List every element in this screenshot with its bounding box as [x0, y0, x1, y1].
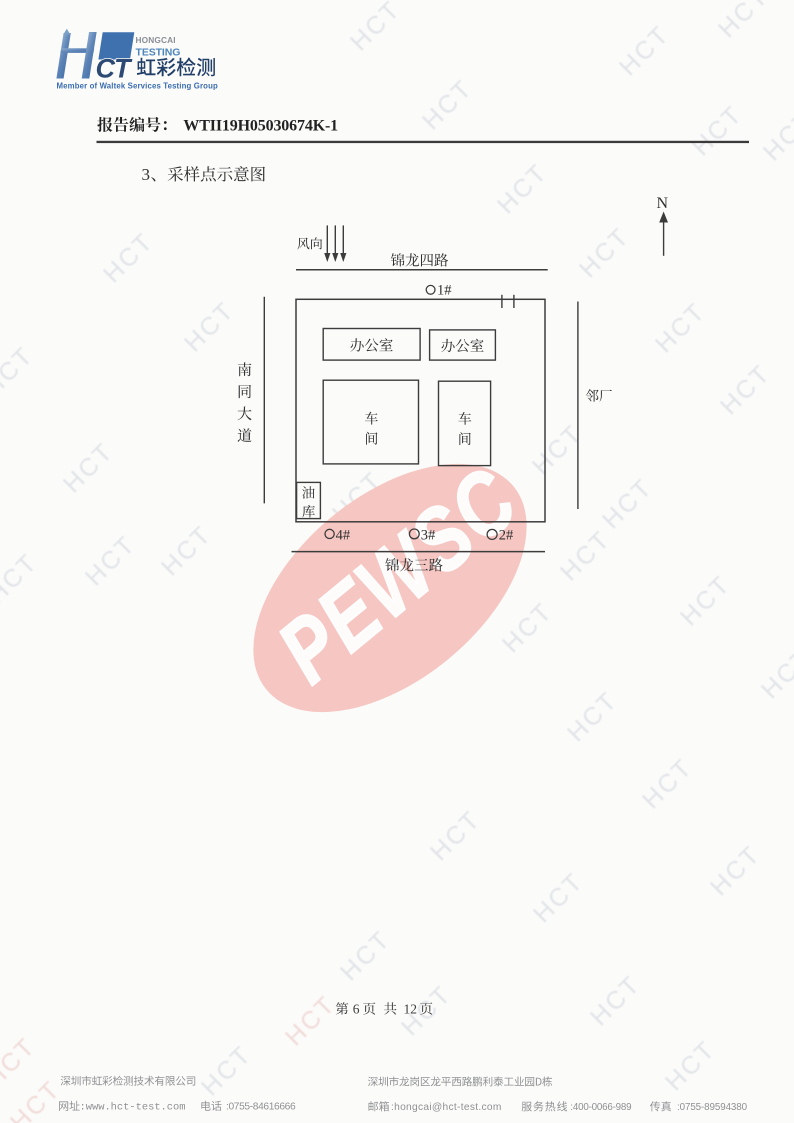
svg-text::400-0066-989: :400-0066-989 — [570, 1102, 631, 1113]
svg-text:HONGCAI: HONGCAI — [136, 35, 176, 45]
svg-text:2#: 2# — [499, 528, 514, 544]
svg-text:3: 3 — [142, 165, 151, 184]
svg-text:12: 12 — [404, 1002, 418, 1017]
svg-text::0755-89594380: :0755-89594380 — [677, 1102, 748, 1113]
svg-text:CT: CT — [96, 54, 133, 84]
svg-text::0755-84616666: :0755-84616666 — [226, 1102, 296, 1113]
svg-text:4#: 4# — [336, 527, 351, 543]
svg-text:WTII19H05030674K-1: WTII19H05030674K-1 — [183, 118, 338, 135]
svg-text:Member of Waltek Services Test: Member of Waltek Services Testing Group — [57, 81, 218, 90]
svg-text::hongcai@hct-test.com: :hongcai@hct-test.com — [391, 1102, 502, 1113]
svg-text:1#: 1# — [437, 282, 452, 298]
svg-text:N: N — [657, 195, 669, 212]
svg-text:3#: 3# — [421, 527, 436, 543]
svg-text::www.hct-test.com: :www.hct-test.com — [80, 1102, 186, 1114]
svg-text:6: 6 — [353, 1002, 360, 1017]
svg-text:TESTING: TESTING — [136, 46, 181, 58]
